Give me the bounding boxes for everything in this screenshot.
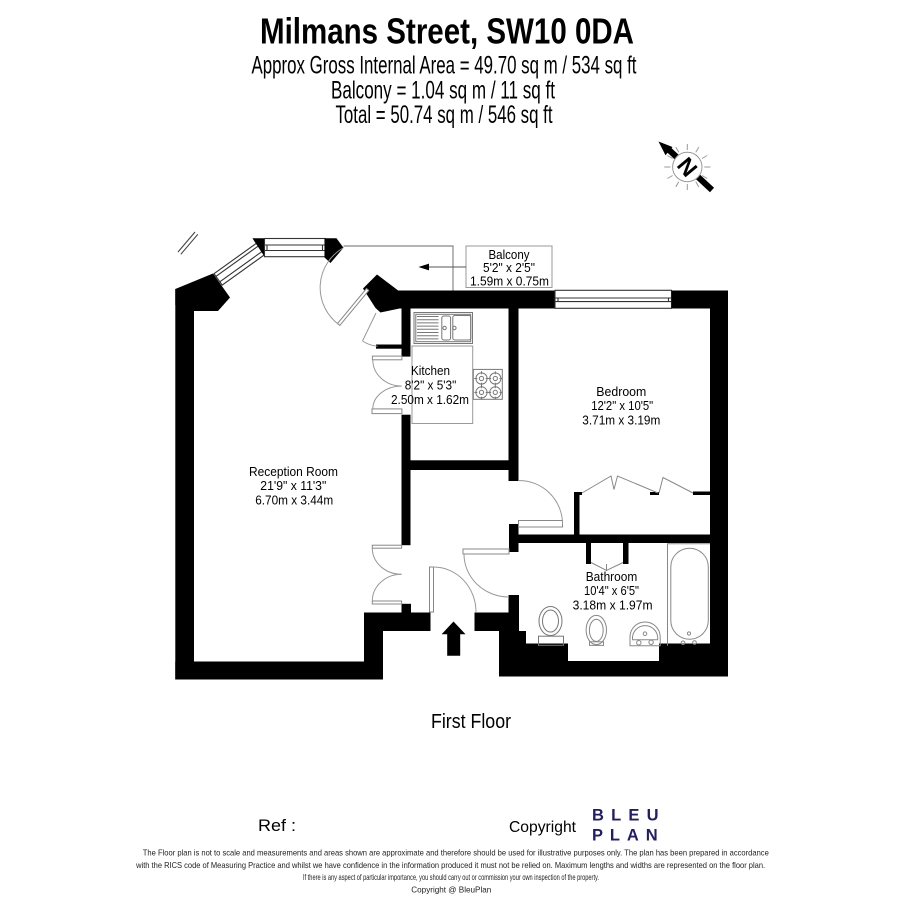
svg-text:If there is any aspect of part: If there is any aspect of particular imp… xyxy=(303,872,599,882)
svg-text:2.50m x 1.62m: 2.50m x 1.62m xyxy=(391,392,469,407)
svg-text:Copyright @ BleuPlan: Copyright @ BleuPlan xyxy=(411,884,491,894)
svg-text:Total = 50.74 sq m / 546 sq ft: Total = 50.74 sq m / 546 sq ft xyxy=(336,101,553,129)
svg-text:Copyright: Copyright xyxy=(509,819,577,836)
svg-text:Bedroom: Bedroom xyxy=(596,384,646,399)
svg-text:Approx Gross Internal Area = 4: Approx Gross Internal Area = 49.70 sq m … xyxy=(252,52,637,80)
svg-text:12'2" x 10'5": 12'2" x 10'5" xyxy=(591,398,653,413)
svg-text:BLEU: BLEU xyxy=(592,807,666,825)
svg-text:Ref :: Ref : xyxy=(258,816,296,835)
svg-text:3.18m x 1.97m: 3.18m x 1.97m xyxy=(573,597,653,612)
svg-text:3.71m x 3.19m: 3.71m x 3.19m xyxy=(582,413,660,428)
svg-text:with the RICS code of Measurin: with the RICS code of Measuring Practice… xyxy=(135,860,765,870)
svg-text:10'4" x 6'5": 10'4" x 6'5" xyxy=(584,583,639,598)
svg-text:PLAN: PLAN xyxy=(592,827,665,845)
svg-text:8'2" x 5'3": 8'2" x 5'3" xyxy=(405,377,457,392)
svg-text:1.59m x 0.75m: 1.59m x 0.75m xyxy=(470,274,549,288)
svg-text:The Floor plan is not to scale: The Floor plan is not to scale and measu… xyxy=(143,848,769,858)
svg-text:Bathroom: Bathroom xyxy=(586,569,638,584)
svg-text:21'9" x 11'3": 21'9" x 11'3" xyxy=(260,478,326,493)
svg-text:Kitchen: Kitchen xyxy=(411,363,450,378)
svg-text:First Floor: First Floor xyxy=(431,711,511,733)
svg-text:5'2" x 2'5": 5'2" x 2'5" xyxy=(483,261,535,275)
svg-text:Balcony: Balcony xyxy=(489,248,531,262)
svg-text:6.70m x 3.44m: 6.70m x 3.44m xyxy=(255,492,333,507)
svg-text:Milmans Street, SW10 0DA: Milmans Street, SW10 0DA xyxy=(260,11,634,52)
svg-text:Reception Room: Reception Room xyxy=(249,464,338,479)
